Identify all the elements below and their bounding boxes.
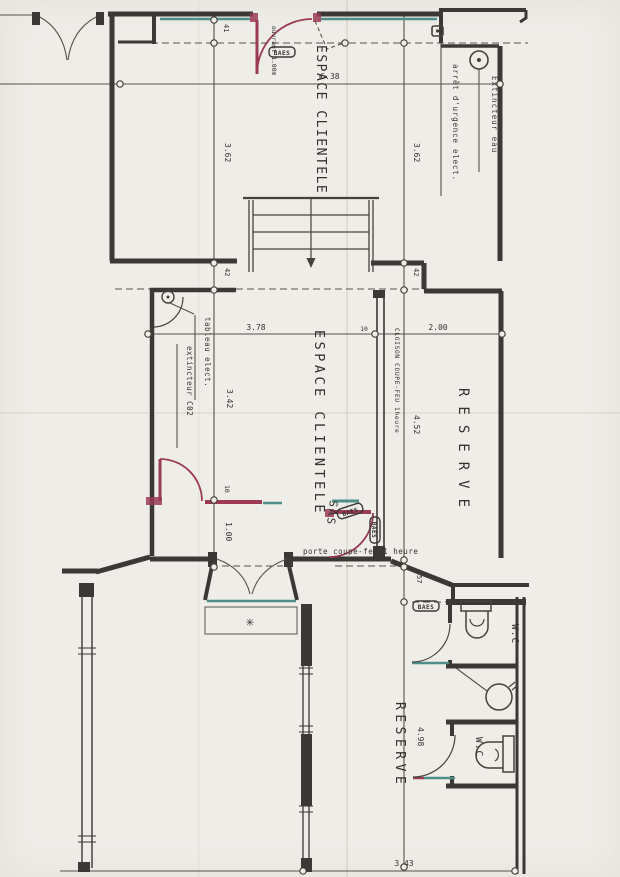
dim-right-height-top: 3.62 — [412, 143, 421, 162]
dim-mid-width-left: 3.78 — [246, 323, 265, 332]
dim-bottom-height: 4.98 — [416, 727, 425, 746]
dim-bottom-width: 3.43 — [394, 859, 413, 868]
neighbor-facade — [82, 585, 92, 868]
label-extincteur-co2: extincteur C02 — [185, 346, 194, 416]
fire-wall-fills — [146, 13, 334, 517]
fire-partition — [377, 292, 384, 556]
label-tableau-elect: tableau elect. — [203, 317, 212, 387]
svg-text:BAES: BAES — [370, 522, 377, 538]
room-label-espace-top: ESPACE CLIENTELE — [313, 45, 328, 194]
vestibule-door-arc-right — [252, 559, 287, 594]
toilet-bottom-tank — [503, 736, 514, 772]
dim-wall-41: 41 — [222, 24, 230, 32]
corner-door-arc — [153, 297, 183, 327]
dimension-labels: 6.38 3.78 10 2.00 3.43 41 3.62 42 3.42 1… — [222, 24, 448, 868]
baes-badge-sas-2: BAES — [370, 517, 380, 543]
room-label-reserve-mid: RESERVE — [455, 388, 471, 517]
side-door-arc — [160, 459, 202, 501]
wc-top-door-arc — [412, 624, 450, 662]
svg-text:BAES: BAES — [418, 604, 434, 611]
toilet-top-bowl — [466, 611, 488, 638]
baes-badges: BAES BAES BAES BAES — [269, 47, 439, 611]
dim-reserve-height: 4.52 — [412, 415, 421, 434]
vestibule-door-arc-left — [217, 559, 250, 594]
dim-wall-42-left: 42 — [223, 268, 231, 276]
label-extincteur-eau: Extincteur eau — [490, 76, 499, 153]
dim-cloison: 10 — [360, 325, 368, 333]
basin-icon — [486, 684, 512, 710]
floor-plan-sheet: ✳ BAES BAES BAES BAES ESPACE CLIENTELE E… — [0, 0, 620, 877]
dim-wall-42-right: 42 — [412, 268, 420, 276]
dimension-lines — [0, 15, 517, 871]
room-label-espace-mid: ESPACE CLIENTELE — [311, 330, 327, 516]
staircase — [243, 198, 379, 272]
floor-plan-drawing: ✳ BAES BAES BAES BAES ESPACE CLIENTELE E… — [0, 0, 620, 877]
label-porte-coupe-feu: porte coupe-feu 1 heure — [303, 547, 418, 556]
vent-symbol-icon: ✳ — [246, 614, 255, 630]
dim-left-height-top: 3.62 — [223, 143, 232, 162]
dim-reserve-width: 2.00 — [428, 323, 447, 332]
room-label-reserve-bottom: RESERVE — [392, 702, 407, 788]
neighbor-double-door — [40, 17, 96, 60]
label-arret-urgence: arrêt d'urgence elect. — [451, 64, 460, 181]
room-label-wc-bottom: W.C — [473, 737, 484, 757]
dim-mid-height-left: 3.42 — [225, 389, 234, 408]
label-ouvrant: ouvrant 1.00m — [270, 26, 277, 75]
dim-front-depth: 57 — [415, 575, 423, 583]
basin-connector — [456, 668, 487, 691]
dim-door-jamb: 10 — [223, 485, 231, 493]
dim-top-width: 6.38 — [320, 72, 339, 81]
room-label-wc-top: W.C — [509, 624, 520, 644]
dim-door-width: 1.00 — [224, 522, 233, 541]
vestibule-flares — [205, 566, 297, 600]
wall-piers — [32, 12, 385, 872]
stair-direction-arrow — [307, 258, 316, 268]
label-cloison: CLOISON COUPE-FEU 1heure — [393, 328, 400, 433]
